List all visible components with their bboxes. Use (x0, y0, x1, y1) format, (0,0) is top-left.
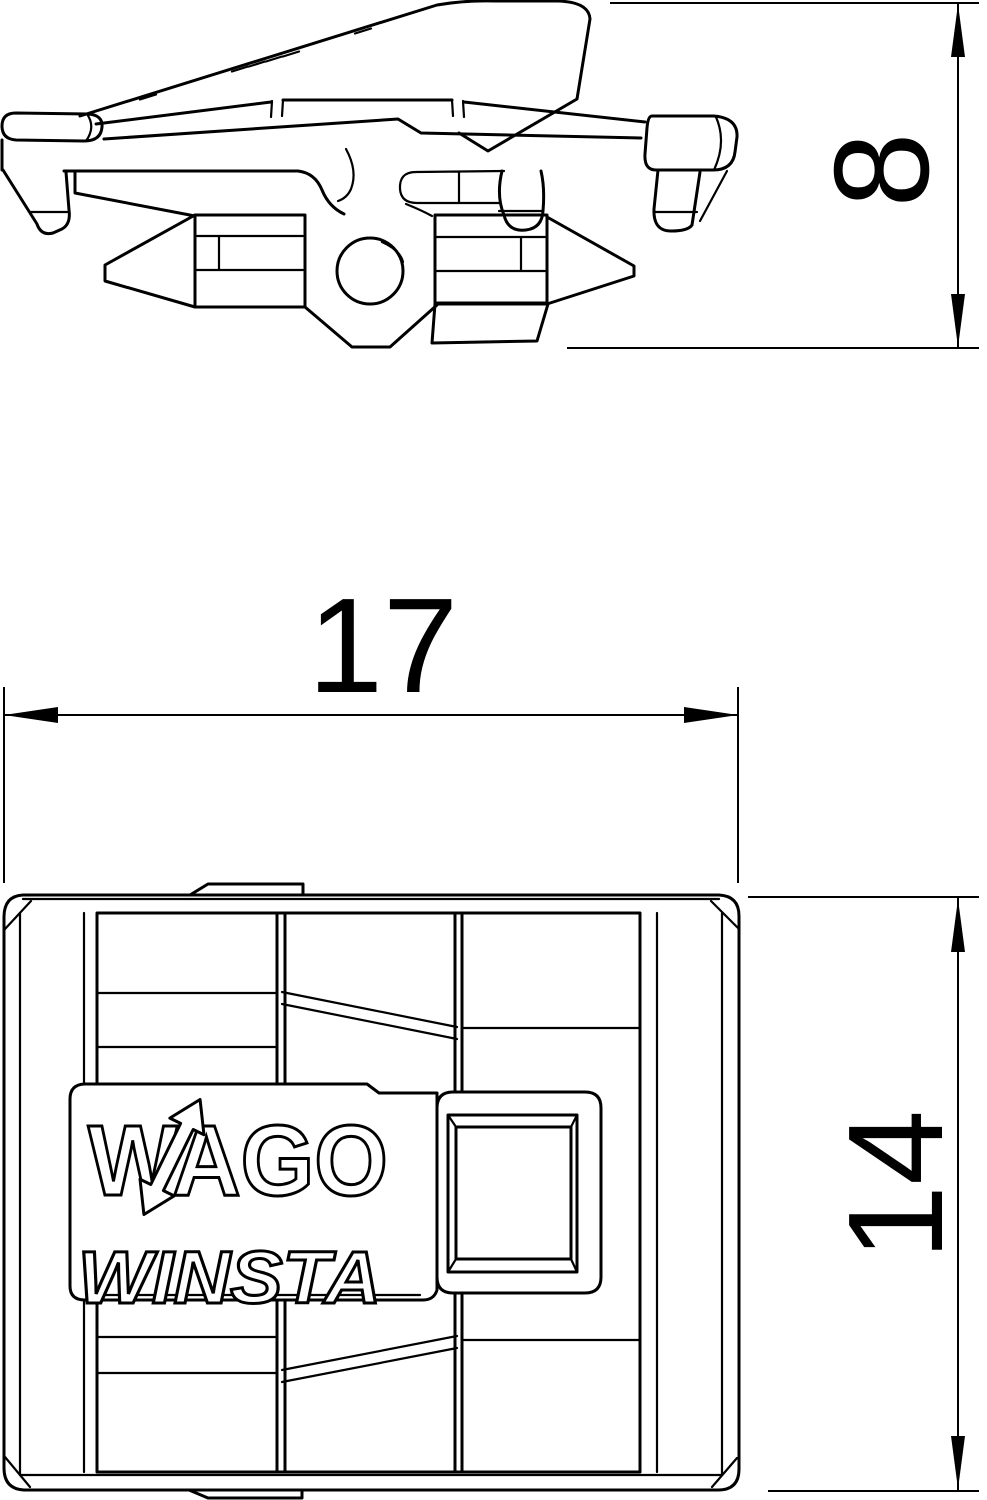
dimension-label: 14 (820, 1110, 971, 1260)
side-profile-view (2, 1, 737, 347)
logo-brand-text: WAGO (88, 1105, 388, 1217)
center-slot (400, 171, 504, 216)
front-view: WAGO WINSTA (4, 884, 739, 1498)
right-cap (645, 116, 737, 170)
dimension-front-width: 17 (4, 570, 738, 883)
arrowhead-right-icon (684, 707, 738, 723)
dimension-label: 8 (806, 132, 957, 207)
right-block-inner (435, 237, 545, 271)
dimension-side-height: 8 (567, 3, 979, 348)
cavity-left-drop (75, 171, 195, 216)
spring-hook-arc (338, 149, 354, 201)
arrowhead-up-icon (951, 899, 965, 952)
left-cap (2, 113, 102, 141)
latch-window-inner (456, 1127, 571, 1259)
dimension-front-height: 14 (748, 897, 979, 1491)
left-block (195, 215, 305, 307)
wing-roof-ticks (271, 100, 464, 117)
left-spike (105, 215, 195, 307)
left-foot (3, 170, 69, 234)
right-spike (547, 217, 634, 304)
arrowhead-down-icon (951, 294, 965, 347)
arrowhead-up-icon (951, 4, 965, 57)
bottom-right-slab (432, 304, 548, 343)
mid-right-foot (499, 171, 543, 230)
technical-drawing-page: WAGO WINSTA 8 17 14 (0, 0, 987, 1500)
wing-front-edge (104, 119, 641, 139)
right-foot-facet (654, 171, 727, 221)
technical-drawing-canvas: WAGO WINSTA 8 17 14 (0, 0, 987, 1500)
lever-blade-outline (80, 1, 590, 151)
right-cap-facet (714, 117, 721, 170)
left-block-inner (197, 236, 303, 270)
logo-series-text: WINSTA (78, 1236, 381, 1319)
arrowhead-down-icon (951, 1436, 965, 1489)
arrowhead-left-icon (4, 707, 58, 723)
bar-underside (64, 171, 344, 214)
lever-serrations (140, 29, 371, 100)
bottom-trapezoid (305, 305, 437, 347)
right-foot (654, 170, 700, 231)
left-cap-facet (86, 114, 91, 141)
dimension-label: 17 (308, 570, 458, 721)
top-tab (190, 884, 303, 895)
